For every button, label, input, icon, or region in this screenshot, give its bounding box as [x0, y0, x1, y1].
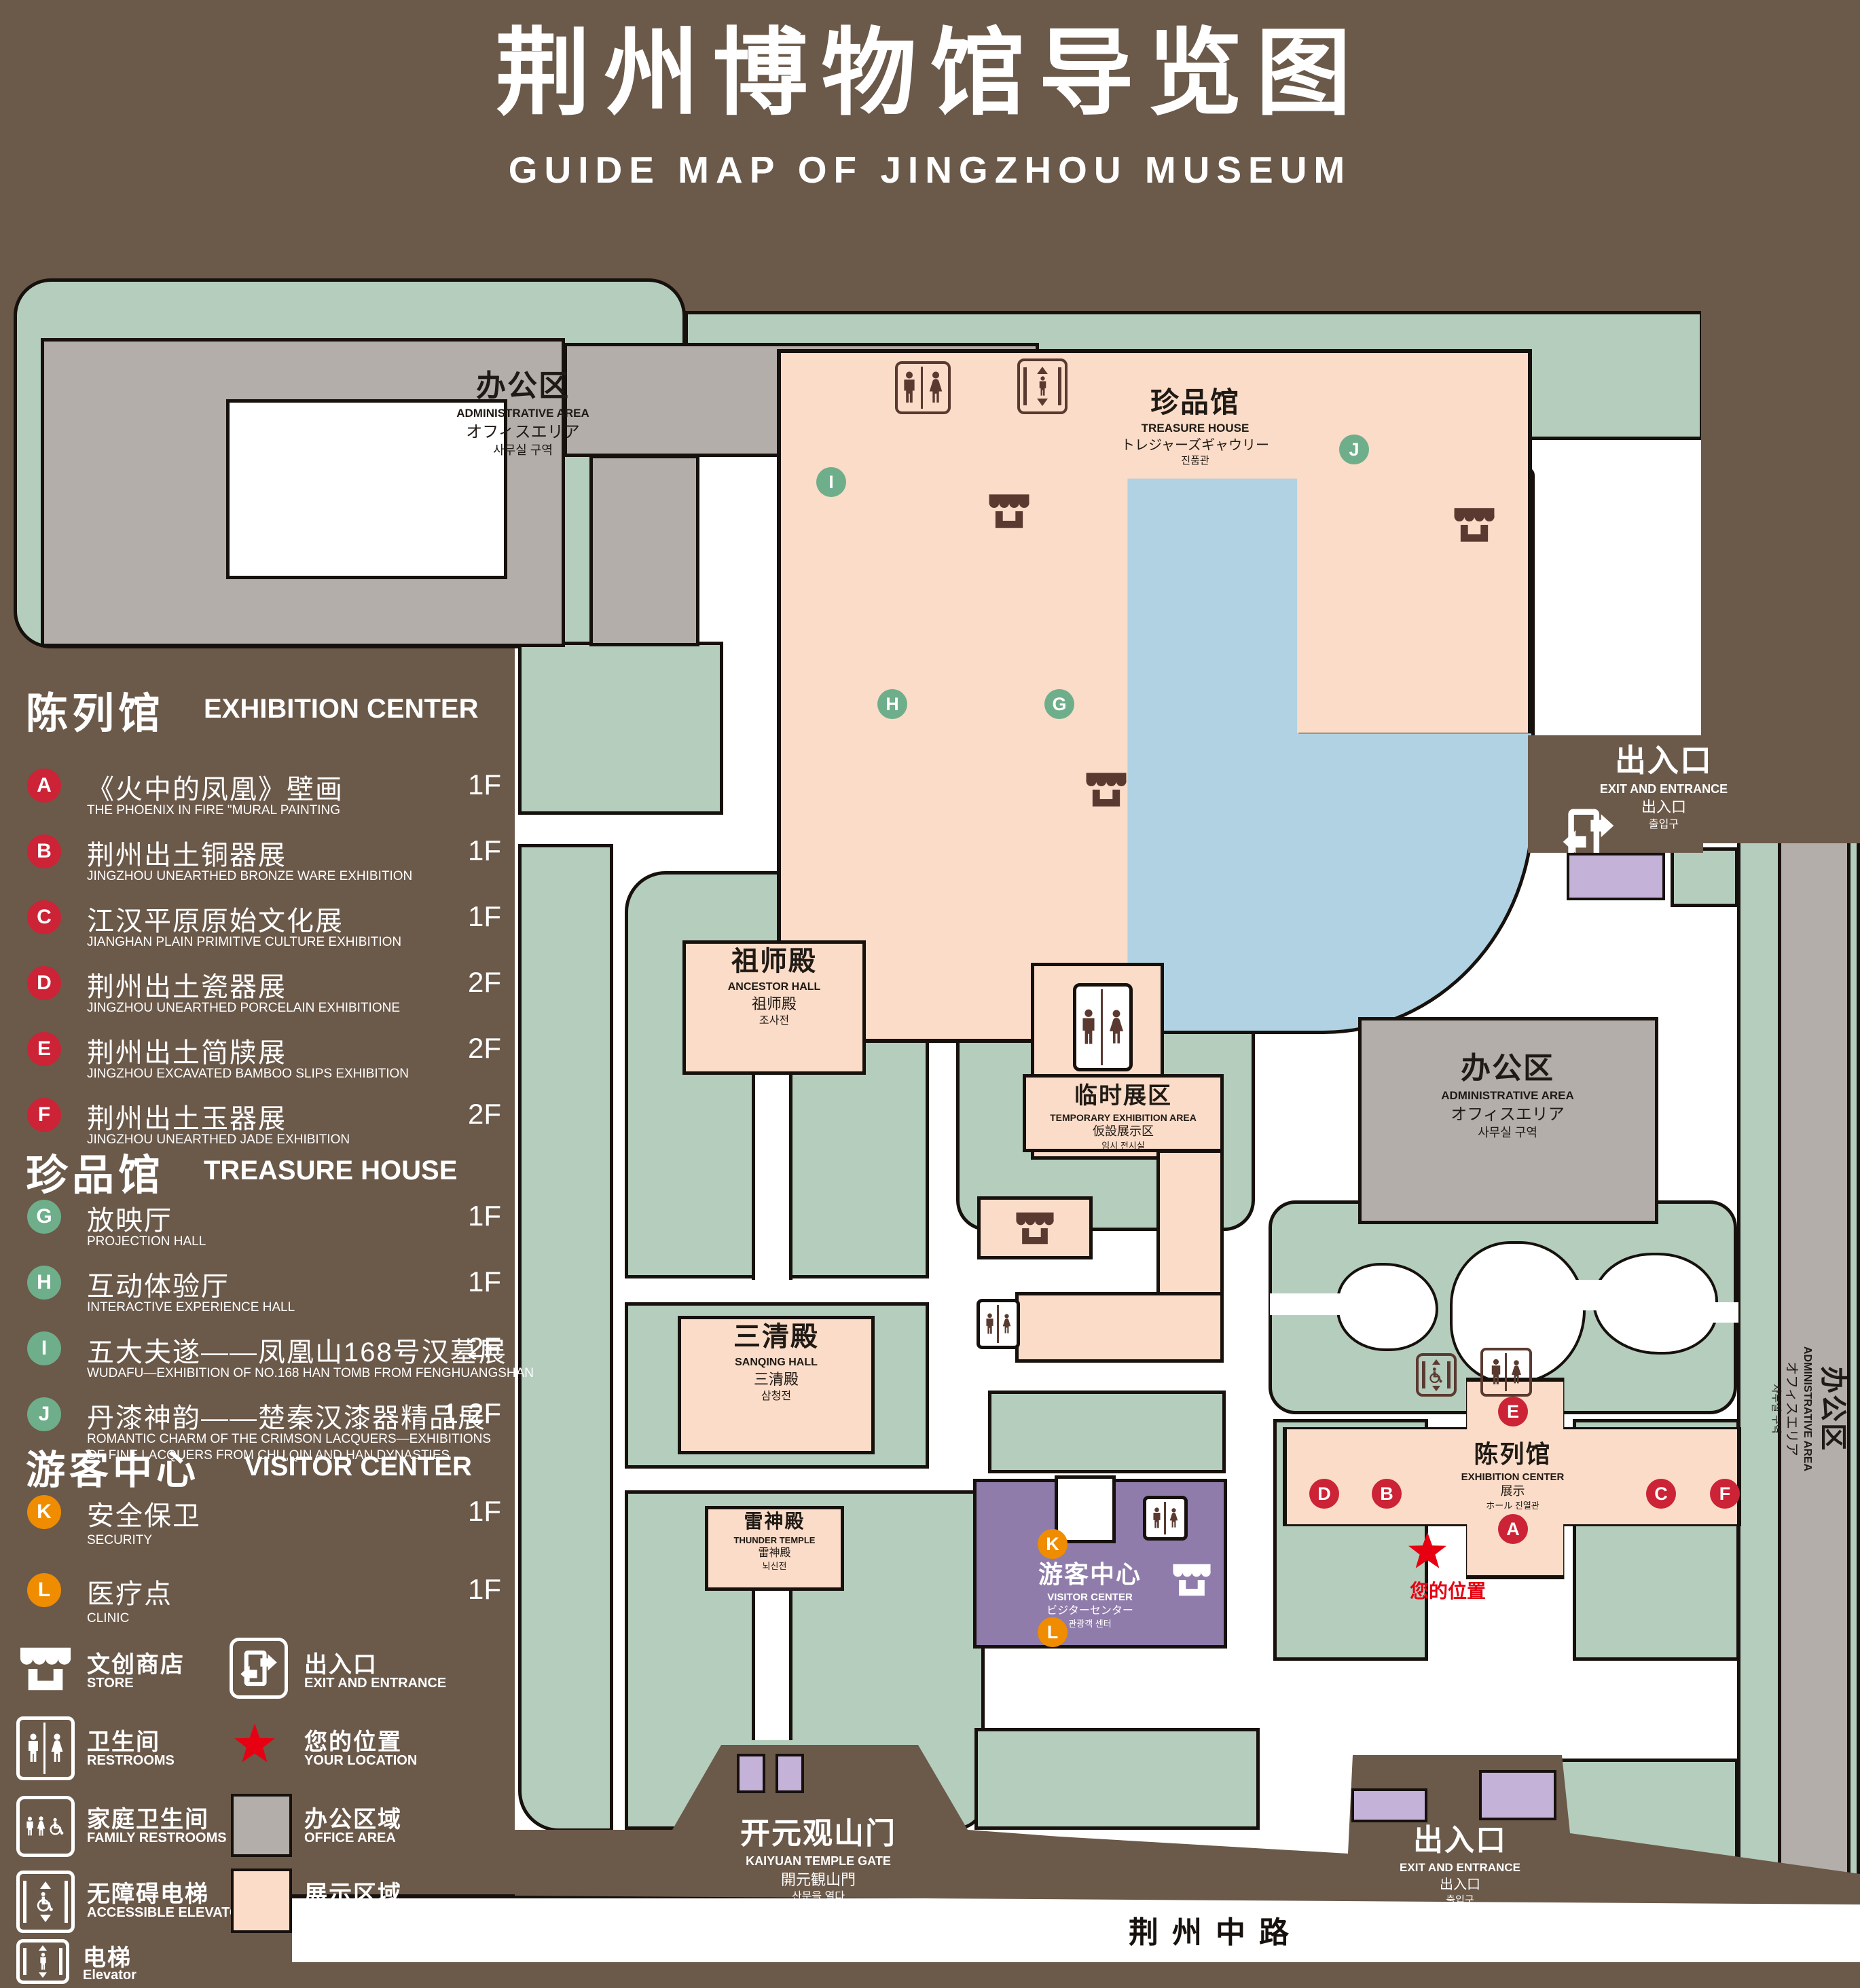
- restrooms-icon: [895, 361, 951, 414]
- badge-j: J: [27, 1397, 61, 1431]
- list-item-i: I 五大夫遂——凤凰山168号汉墓展 WUDAFU—EXHIBITION OF …: [19, 1330, 505, 1395]
- section-title-treasure-en: TREASURE HOUSE: [204, 1156, 457, 1186]
- gate-pillar-left: [737, 1754, 765, 1793]
- temporary-exhibition-base: [1015, 1292, 1224, 1363]
- admin-right-label: 办公区 ADMINISTRATIVE AREA オフィスエリア 사무실 구역: [1399, 1049, 1616, 1161]
- display-area-swatch: [231, 1869, 292, 1933]
- legend-exit-zh: 出入口: [304, 1646, 378, 1679]
- section-title-visitor-zh: 游客中心: [26, 1438, 200, 1495]
- store-icon: [1172, 1560, 1211, 1600]
- legend-restrooms-en: RESTROOMS: [87, 1753, 175, 1769]
- restrooms-icon: [1073, 983, 1133, 1071]
- restrooms-icon: [16, 1716, 75, 1780]
- accessible-elevator-icon: [16, 1871, 75, 1933]
- section-title-treasure-zh: 珍品馆: [26, 1141, 164, 1202]
- legend-accessible-zh: 无障碍电梯: [87, 1875, 209, 1909]
- marker-g: G: [1044, 689, 1074, 719]
- page-subtitle: GUIDE MAP OF JINGZHOU MUSEUM: [0, 144, 1860, 195]
- treasure-house-label: 珍品馆 TREASURE HOUSE トレジャーズギャウリー 진품관: [1073, 384, 1317, 468]
- marker-d: D: [1309, 1479, 1339, 1509]
- garden-path-1: [1270, 1293, 1343, 1315]
- page-title: 荆州博物馆导览图: [0, 5, 1860, 124]
- list-item-k: K 安全保卫 SECURITY 1F: [19, 1494, 505, 1559]
- pond-small: [1336, 1263, 1438, 1351]
- admin-topleft-label: 办公区 ADMINISTRATIVE AREA オフィスエリア 사무실 구역: [421, 367, 625, 448]
- marker-b: B: [1372, 1479, 1402, 1509]
- legend-family-zh: 家庭卫生间: [87, 1801, 209, 1834]
- restrooms-icon: [1480, 1348, 1532, 1397]
- legend-display-en: DISPLAY AREA: [304, 1905, 403, 1921]
- marker-k: K: [1038, 1529, 1068, 1559]
- store-icon: [1453, 504, 1495, 546]
- your-location-star-icon: [1407, 1532, 1448, 1571]
- grass-left-upper: [518, 642, 723, 815]
- temporary-exhibition-label: 临时展区 TEMPORARY EXHIBITION AREA 仮設展示区 임시 …: [1023, 1081, 1224, 1149]
- legend-family-en: FAMILY RESTROOMS: [87, 1830, 227, 1846]
- garden-path-3: [1710, 1302, 1738, 1323]
- section-title-exhibition-zh: 陈列馆: [26, 679, 164, 740]
- list-item-h: H 互动体验厅 INTERACTIVE EXPERIENCE HALL 1F: [19, 1264, 505, 1329]
- legend-office-en: OFFICE AREA: [304, 1830, 396, 1846]
- marker-j: J: [1339, 435, 1369, 464]
- badge-l: L: [27, 1573, 61, 1607]
- exhibition-center-label: 陈列馆 EXHIBITION CENTER 展示 ホール 진열관: [1433, 1438, 1592, 1514]
- location-star-icon: [233, 1723, 276, 1765]
- store-building: [977, 1196, 1093, 1259]
- legend-restrooms-zh: 卫生间: [87, 1723, 160, 1756]
- badge-e: E: [27, 1032, 61, 1066]
- admin-building-topleft-bar: [589, 455, 699, 646]
- marker-l: L: [1038, 1617, 1068, 1647]
- exit-booth-bottom-left: [1351, 1788, 1427, 1822]
- marker-h: H: [877, 689, 907, 719]
- legend-office-zh: 办公区域: [304, 1801, 402, 1834]
- family-restrooms-icon: [16, 1796, 75, 1857]
- marker-i: I: [816, 467, 846, 497]
- badge-k: K: [27, 1495, 61, 1529]
- elevator-icon: [1017, 358, 1068, 414]
- guide-map-poster: 荆州博物馆导览图 GUIDE MAP OF JINGZHOU MUSEUM 办公…: [0, 0, 1860, 1988]
- badge-f: F: [27, 1098, 61, 1132]
- legend-store-zh: 文创商店: [87, 1646, 185, 1679]
- section-title-exhibition-en: EXHIBITION CENTER: [204, 694, 478, 724]
- marker-a: A: [1498, 1514, 1528, 1544]
- garden-path-2: [1575, 1280, 1603, 1310]
- list-item-g: G 放映厅 PROJECTION HALL 1F: [19, 1198, 505, 1264]
- admin-strip-label: 办公区 ADMINISTRATIVE AREA オフィスエリア 사무실 구역: [1776, 1239, 1850, 1579]
- exit-booth-top-right: [1567, 853, 1665, 900]
- exit-icon: [230, 1638, 288, 1699]
- visitor-center-notch: [1055, 1475, 1116, 1543]
- grass-near-exit: [1671, 847, 1738, 907]
- legend-elevator-en: Elevator: [83, 1968, 136, 1983]
- list-item-a: A 《火中的凤凰》壁画 THE PHOENIX IN FIRE "MURAL P…: [19, 767, 505, 832]
- grass-left-strip: [518, 844, 613, 1832]
- badge-i: I: [27, 1331, 61, 1365]
- store-icon: [988, 490, 1030, 532]
- walkway-thunder: [752, 1591, 792, 1740]
- list-item-c: C 江汉平原原始文化展 JIANGHAN PLAIN PRIMITIVE CUL…: [19, 899, 505, 964]
- legend-accessible-en: ACCESSIBLE ELEVATOR: [87, 1905, 250, 1921]
- marker-e: E: [1498, 1397, 1528, 1426]
- grass-gate-right: [974, 1728, 1260, 1830]
- restrooms-icon: [977, 1299, 1020, 1349]
- marker-c: C: [1646, 1479, 1676, 1509]
- badge-g: G: [27, 1200, 61, 1234]
- section-title-visitor-en: VISITOR CENTER: [244, 1452, 472, 1482]
- badge-d: D: [27, 966, 61, 1000]
- walkway-ancestor: [752, 1075, 792, 1280]
- list-item-l: L 医疗点 CLINIC 1F: [19, 1572, 505, 1637]
- store-icon: [19, 1644, 72, 1693]
- list-item-b: B 荆州出土铜器展 JINGZHOU UNEARTHED BRONZE WARE…: [19, 833, 505, 898]
- list-item-e: E 荆州出土简牍展 JINGZHOU EXCAVATED BAMBOO SLIP…: [19, 1031, 505, 1096]
- badge-c: C: [27, 900, 61, 934]
- road-label: 荆州中路: [985, 1909, 1446, 1950]
- elevator-icon: [16, 1939, 69, 1984]
- legend-display-zh: 展示区域: [304, 1875, 402, 1909]
- legend-exit-en: EXIT AND ENTRANCE: [304, 1676, 446, 1691]
- legend-location-zh: 您的位置: [304, 1723, 402, 1756]
- office-area-swatch: [231, 1794, 292, 1857]
- exit-bottom-label: 出入口 EXIT AND ENTRANCE 出入口 출입구: [1372, 1821, 1548, 1897]
- restrooms-icon: [1143, 1496, 1188, 1541]
- store-icon: [1015, 1209, 1055, 1248]
- badge-b: B: [27, 834, 61, 868]
- gate-pillar-right: [776, 1754, 804, 1793]
- exit-booth-bottom-right: [1479, 1770, 1556, 1820]
- your-location-label: 您的位置: [1380, 1577, 1516, 1604]
- sanqing-hall: 三清殿 SANQING HALL 三清殿 삼청전: [678, 1316, 875, 1454]
- accessible-elevator-icon: [1416, 1353, 1457, 1397]
- thunder-temple: 雷神殿 THUNDER TEMPLE 雷神殿 뇌신전: [705, 1506, 844, 1591]
- marker-f: F: [1710, 1479, 1740, 1509]
- grass-above-visitor: [988, 1391, 1226, 1473]
- store-icon: [1085, 769, 1127, 811]
- legend-store-en: STORE: [87, 1676, 134, 1691]
- badge-a: A: [27, 769, 61, 803]
- legend-location-en: YOUR LOCATION: [304, 1753, 417, 1769]
- visitor-center-label: 游客中心 VISITOR CENTER ビジターセンター 관광객 센터: [1005, 1558, 1175, 1633]
- kaiyuan-gate-label: 开元观山门 KAIYUAN TEMPLE GATE 開元観山門 산문을 열다: [699, 1814, 937, 1896]
- list-item-d: D 荆州出土瓷器展 JINGZHOU UNEARTHED PORCELAIN E…: [19, 965, 505, 1030]
- ancestor-hall: 祖师殿 ANCESTOR HALL 祖师殿 조사전: [682, 940, 866, 1075]
- badge-h: H: [27, 1266, 61, 1300]
